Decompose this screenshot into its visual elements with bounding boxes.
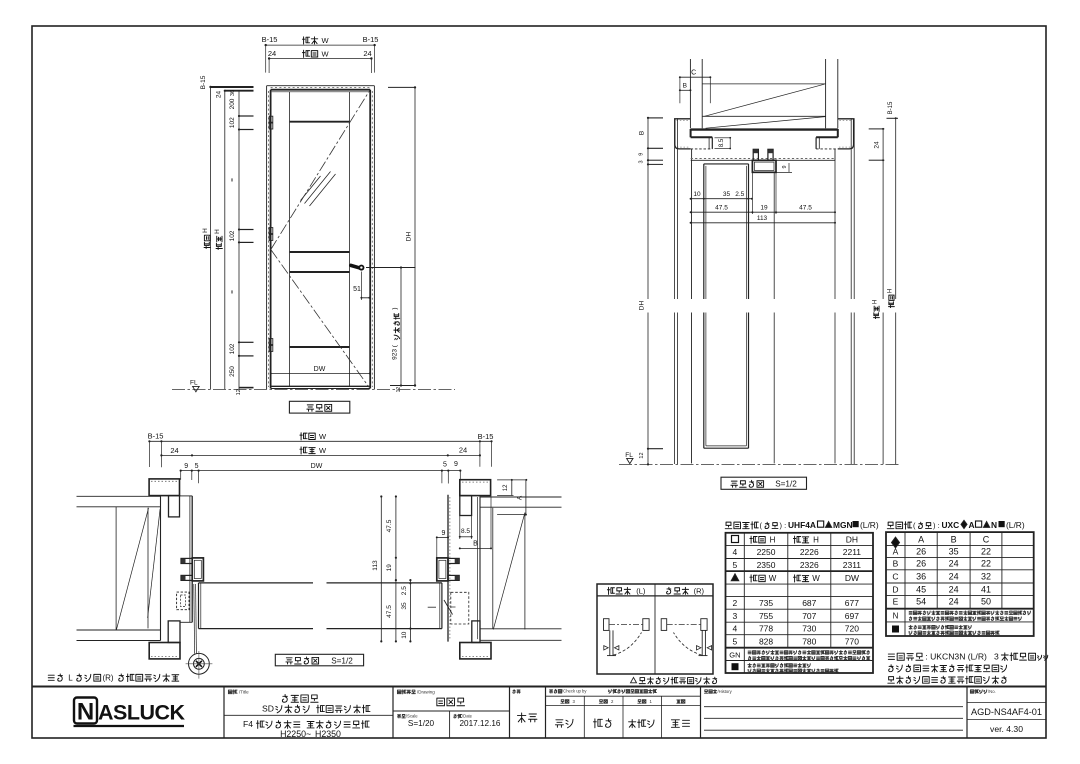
- svg-text:24: 24: [459, 445, 467, 454]
- svg-text:47.5: 47.5: [715, 205, 728, 212]
- svg-text:10: 10: [401, 631, 408, 639]
- svg-text:DH: DH: [405, 232, 412, 242]
- svg-text:W: W: [769, 574, 777, 583]
- svg-text:24: 24: [170, 446, 178, 455]
- svg-text:2350: 2350: [757, 560, 776, 570]
- svg-text:DH: DH: [846, 534, 858, 544]
- svg-text:H: H: [214, 229, 221, 234]
- svg-text:UHF4A: UHF4A: [788, 520, 816, 530]
- svg-text:(R): (R): [102, 674, 113, 683]
- svg-text:C: C: [691, 69, 696, 76]
- svg-text:47.5: 47.5: [799, 205, 812, 212]
- svg-text:S=1/20: S=1/20: [408, 719, 435, 728]
- svg-text:50: 50: [981, 597, 991, 607]
- svg-text:(R): (R): [694, 586, 705, 595]
- svg-text:32: 32: [981, 572, 991, 582]
- svg-text:(L/R): (L/R): [1006, 520, 1025, 530]
- svg-text:22: 22: [981, 559, 991, 569]
- svg-text:/History: /History: [718, 689, 733, 694]
- svg-text:3: 3: [994, 652, 999, 662]
- svg-text:102: 102: [229, 343, 236, 354]
- svg-text:3: 3: [733, 611, 738, 621]
- svg-text:H: H: [872, 300, 878, 304]
- svg-text:2017.12.16: 2017.12.16: [460, 719, 501, 728]
- svg-text:22: 22: [981, 547, 991, 557]
- svg-text:W: W: [319, 446, 327, 455]
- svg-text:) :: ) :: [933, 521, 940, 530]
- svg-text:707: 707: [802, 611, 816, 621]
- svg-text:26: 26: [916, 559, 926, 569]
- svg-text:/Check up by: /Check up by: [562, 689, 587, 694]
- svg-text:2.5: 2.5: [401, 586, 408, 595]
- svg-text:H2250: H2250: [280, 729, 306, 739]
- svg-text:113: 113: [757, 215, 768, 222]
- svg-text:B-15: B-15: [148, 432, 164, 441]
- svg-text:9: 9: [782, 165, 788, 168]
- svg-text:A: A: [893, 547, 899, 557]
- svg-text:2211: 2211: [843, 547, 862, 557]
- svg-text:9: 9: [454, 461, 458, 468]
- svg-text:H: H: [770, 535, 776, 544]
- svg-text:19: 19: [386, 564, 393, 572]
- svg-text:W: W: [321, 36, 329, 45]
- svg-text:: UKCN3N (L/R): : UKCN3N (L/R): [925, 652, 987, 662]
- svg-text:H: H: [887, 289, 893, 293]
- svg-text:720: 720: [845, 624, 859, 634]
- svg-text:H: H: [813, 535, 819, 544]
- svg-text:687: 687: [802, 598, 816, 608]
- svg-text:730: 730: [802, 624, 816, 634]
- svg-text:9: 9: [442, 530, 446, 537]
- svg-text:B-15: B-15: [262, 35, 278, 44]
- svg-text:780: 780: [802, 636, 816, 646]
- svg-text:9: 9: [184, 463, 188, 470]
- svg-text:45: 45: [916, 584, 926, 594]
- svg-text:12: 12: [396, 387, 402, 393]
- svg-text:(L/R): (L/R): [860, 520, 879, 530]
- svg-text:35: 35: [949, 547, 959, 557]
- svg-text:/Drawing: /Drawing: [417, 689, 435, 694]
- svg-text:B-15: B-15: [888, 101, 894, 114]
- svg-text:2311: 2311: [843, 560, 862, 570]
- svg-text:N: N: [893, 611, 899, 620]
- svg-text:102: 102: [229, 117, 236, 128]
- svg-text:8.5: 8.5: [719, 138, 725, 147]
- svg-text:W: W: [812, 574, 820, 583]
- svg-text:D: D: [892, 584, 898, 594]
- svg-text:H2350: H2350: [315, 729, 341, 739]
- svg-text:24: 24: [949, 559, 959, 569]
- svg-text:770: 770: [845, 636, 859, 646]
- svg-text:47.5: 47.5: [386, 605, 393, 618]
- svg-text:DH: DH: [639, 301, 646, 311]
- svg-text:35: 35: [401, 602, 408, 610]
- svg-text:923 (: 923 (: [392, 344, 399, 360]
- svg-text:5: 5: [443, 462, 447, 469]
- svg-text:=: =: [229, 290, 236, 294]
- svg-text:778: 778: [759, 624, 773, 634]
- svg-text:2.5: 2.5: [735, 191, 744, 198]
- svg-text:12: 12: [639, 452, 645, 458]
- svg-text:GN: GN: [729, 650, 740, 659]
- svg-text:B-15: B-15: [478, 432, 494, 441]
- svg-text:N: N: [991, 520, 997, 530]
- svg-text:200: 200: [229, 98, 236, 109]
- svg-text:B: B: [473, 541, 478, 548]
- svg-text:DW: DW: [314, 366, 326, 373]
- svg-text:24: 24: [949, 572, 959, 582]
- svg-text:54: 54: [916, 597, 926, 607]
- svg-text:24: 24: [216, 91, 223, 99]
- svg-text:B: B: [683, 83, 687, 90]
- svg-text:26: 26: [916, 547, 926, 557]
- svg-text:4: 4: [733, 547, 738, 557]
- svg-text:9: 9: [639, 153, 645, 156]
- svg-text:2250: 2250: [757, 547, 776, 557]
- svg-text:E: E: [893, 597, 899, 607]
- svg-text:24: 24: [949, 597, 959, 607]
- svg-text:12: 12: [503, 484, 509, 491]
- svg-text:/Date: /Date: [462, 714, 473, 719]
- svg-text:SD: SD: [262, 704, 274, 714]
- svg-text:/No.: /No.: [988, 689, 996, 694]
- svg-text:697: 697: [845, 611, 859, 621]
- svg-text:UXC: UXC: [942, 520, 960, 530]
- svg-text:2326: 2326: [800, 560, 819, 570]
- svg-text:DW: DW: [311, 463, 323, 470]
- svg-text:35: 35: [723, 191, 731, 198]
- svg-text:B-15: B-15: [363, 35, 379, 44]
- svg-text:DW: DW: [845, 573, 859, 583]
- svg-text:=: =: [229, 178, 236, 182]
- svg-text:2226: 2226: [800, 547, 819, 557]
- svg-text:AGD-NS4AF4-01: AGD-NS4AF4-01: [971, 707, 1042, 717]
- svg-text:B: B: [951, 535, 957, 545]
- svg-text:L: L: [68, 674, 73, 683]
- svg-text:): ): [392, 307, 399, 309]
- svg-text:755: 755: [759, 611, 773, 621]
- svg-text:4: 4: [733, 624, 738, 634]
- svg-text:H: H: [202, 228, 209, 233]
- svg-text:S=1/2: S=1/2: [331, 656, 353, 665]
- svg-text:10: 10: [693, 191, 701, 198]
- svg-text:S=1/2: S=1/2: [775, 480, 797, 489]
- svg-text:5: 5: [195, 463, 199, 470]
- svg-text:36: 36: [230, 90, 236, 96]
- svg-text:/Title: /Title: [239, 689, 249, 694]
- svg-text:A: A: [516, 495, 523, 500]
- svg-text:ver. 4.30: ver. 4.30: [990, 724, 1023, 734]
- svg-text:3: 3: [639, 160, 645, 163]
- svg-text:C: C: [983, 535, 990, 545]
- svg-text:A: A: [969, 520, 975, 530]
- svg-text:~: ~: [306, 729, 311, 739]
- svg-text:51: 51: [353, 286, 361, 293]
- svg-text:828: 828: [759, 636, 773, 646]
- svg-text:F4: F4: [243, 719, 253, 729]
- svg-text:ASLUCK: ASLUCK: [98, 701, 186, 725]
- svg-text:5: 5: [733, 636, 738, 646]
- svg-text:5: 5: [733, 560, 738, 570]
- svg-text:B-15: B-15: [200, 75, 207, 89]
- svg-text:W: W: [321, 49, 329, 58]
- svg-text:A: A: [918, 535, 924, 545]
- svg-text:735: 735: [759, 598, 773, 608]
- svg-text:C: C: [892, 572, 898, 582]
- svg-text:B: B: [638, 131, 645, 135]
- svg-text:24: 24: [873, 141, 880, 149]
- svg-text:/Scale: /Scale: [406, 714, 418, 719]
- svg-text:FL: FL: [190, 379, 198, 386]
- svg-text:250: 250: [229, 366, 236, 377]
- svg-text:113: 113: [372, 560, 379, 571]
- svg-text:(L): (L): [636, 586, 646, 595]
- svg-text:24: 24: [949, 584, 959, 594]
- svg-text:36: 36: [916, 572, 926, 582]
- svg-text:B: B: [893, 559, 899, 569]
- svg-text:41: 41: [981, 584, 991, 594]
- svg-text:) :: ) :: [780, 521, 787, 530]
- svg-text:19: 19: [760, 205, 768, 212]
- svg-text:8.5: 8.5: [461, 528, 470, 535]
- svg-text:12: 12: [236, 389, 242, 395]
- svg-text:24: 24: [268, 49, 276, 58]
- svg-text:677: 677: [845, 598, 859, 608]
- svg-text:102: 102: [229, 230, 236, 241]
- svg-text:MGN: MGN: [833, 520, 853, 530]
- svg-text:24: 24: [363, 49, 371, 58]
- svg-text:47.5: 47.5: [386, 519, 393, 532]
- svg-text:2: 2: [733, 598, 738, 608]
- svg-text:W: W: [319, 432, 327, 441]
- svg-text:N: N: [77, 699, 94, 726]
